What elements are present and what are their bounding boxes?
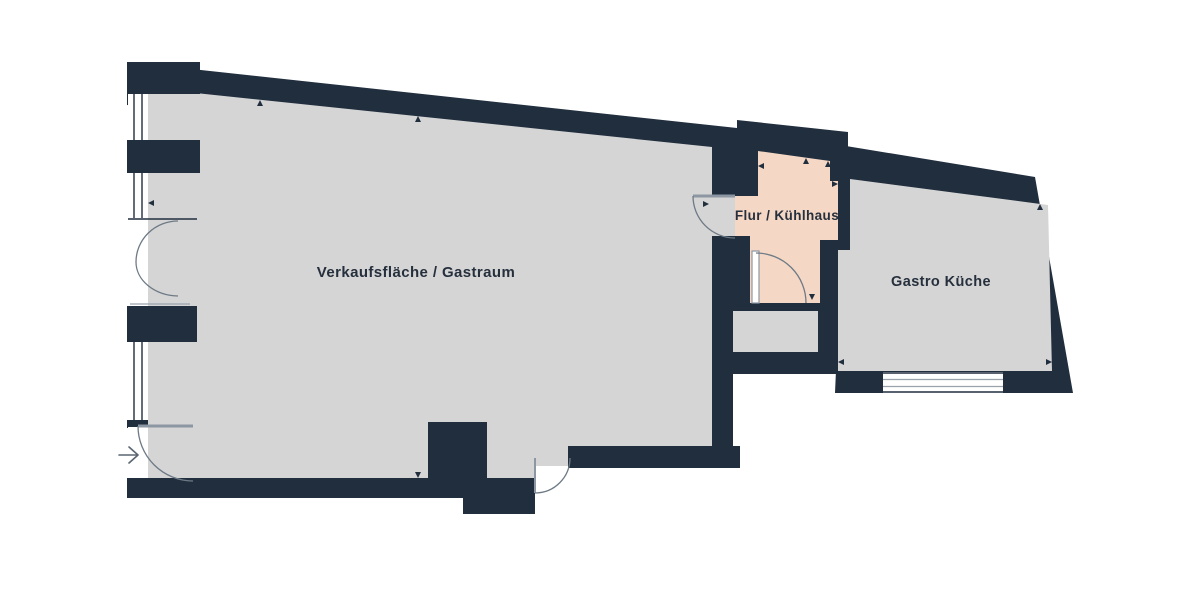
window-left-3: [128, 342, 148, 420]
window-left-1: [128, 94, 148, 140]
wall-alcove-top: [733, 303, 820, 311]
doorway-floor-flur: [712, 196, 735, 236]
room-label-gastro-kueche: Gastro Küche: [891, 274, 991, 290]
room-verkaufsflaeche-gastraum: [148, 88, 712, 478]
alcove-below-flur: [733, 311, 818, 352]
room-label-verkaufsflaeche: Verkaufsfläche / Gastraum: [317, 264, 515, 281]
floor-plan-svg: Verkaufsfläche / Gastraum Flur / Kühlhau…: [0, 0, 1200, 600]
window-kitchen-bottom: [883, 372, 1003, 393]
floor-plan-page: Verkaufsfläche / Gastraum Flur / Kühlhau…: [0, 0, 1200, 600]
wall-pillar-bottom: [428, 422, 487, 479]
wall-pier-left-2: [127, 140, 200, 173]
wall-pier-left-3: [127, 306, 197, 342]
window-left-2: [128, 173, 148, 218]
room-label-flur-kuehlhaus: Flur / Kühlhaus: [735, 208, 839, 223]
wall-pier-top-left: [127, 62, 200, 94]
wall-bottom-step: [463, 478, 535, 514]
wall-vertical-strip: [712, 356, 733, 452]
